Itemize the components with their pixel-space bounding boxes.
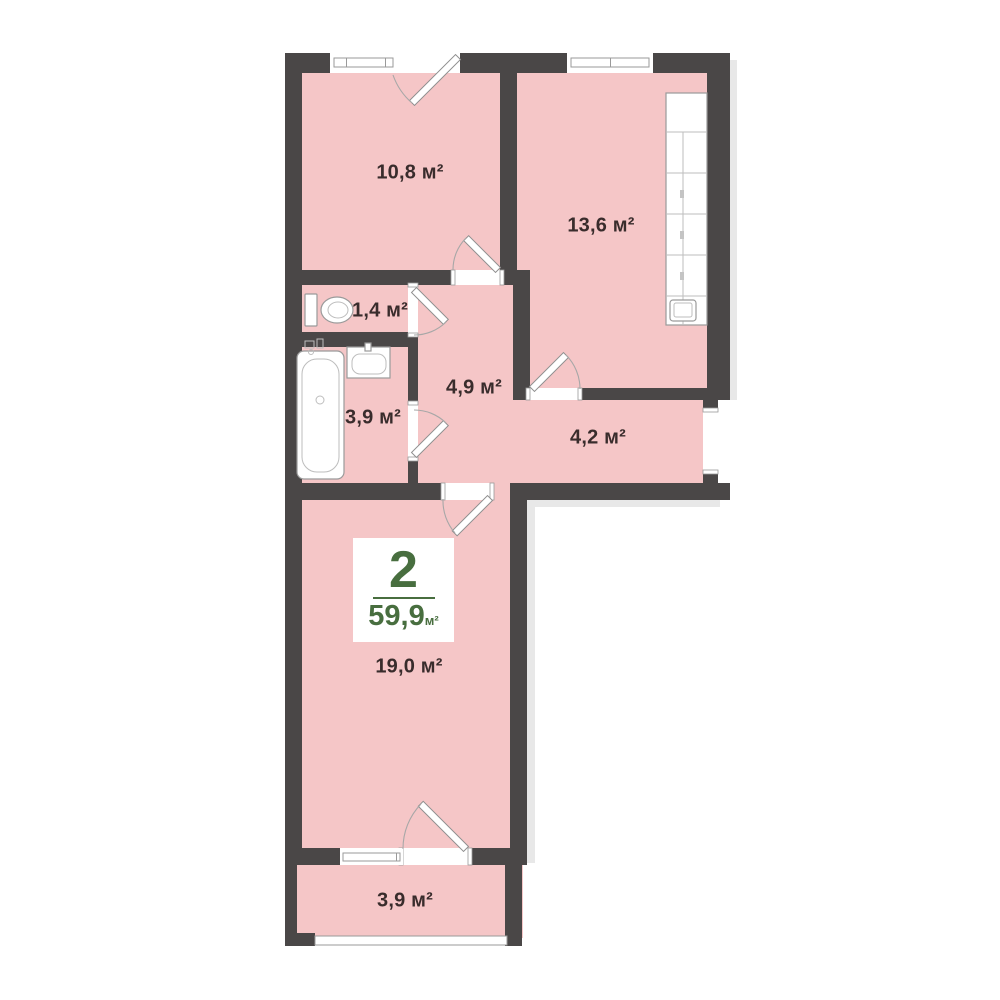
total-area: 59,9м² xyxy=(368,603,438,634)
window-balcony-sill xyxy=(340,848,403,865)
area-label-living-room: 19,0 м² xyxy=(375,656,442,679)
floorplan-canvas: 10,8 м² 13,6 м² 1,4 м² 4,9 м² 3,9 м² 4,2… xyxy=(0,0,1000,1000)
area-label-bedroom: 10,8 м² xyxy=(376,162,443,185)
window-bedroom xyxy=(330,53,397,73)
entrance-opening xyxy=(703,412,718,470)
area-label-bathroom: 3,9 м² xyxy=(345,407,401,430)
floorplan-drawing xyxy=(0,0,1000,1000)
kitchen-units-icon xyxy=(666,93,707,325)
window-kitchen xyxy=(567,53,653,73)
toilet-icon xyxy=(305,294,353,326)
balcony-glazing xyxy=(315,936,507,945)
badge-divider xyxy=(373,597,435,599)
area-label-hallway: 4,9 м² xyxy=(446,377,502,400)
area-label-balcony: 3,9 м² xyxy=(377,890,433,913)
washbasin-icon xyxy=(347,343,390,378)
area-label-wc: 1,4 м² xyxy=(352,300,408,323)
apartment-info-badge: 2 59,9м² xyxy=(353,538,454,642)
bathtub-icon xyxy=(297,351,344,479)
area-label-corridor: 4,2 м² xyxy=(570,427,626,450)
rooms-count: 2 xyxy=(389,547,418,593)
total-area-unit: м² xyxy=(425,613,439,628)
area-label-kitchen: 13,6 м² xyxy=(567,215,634,238)
